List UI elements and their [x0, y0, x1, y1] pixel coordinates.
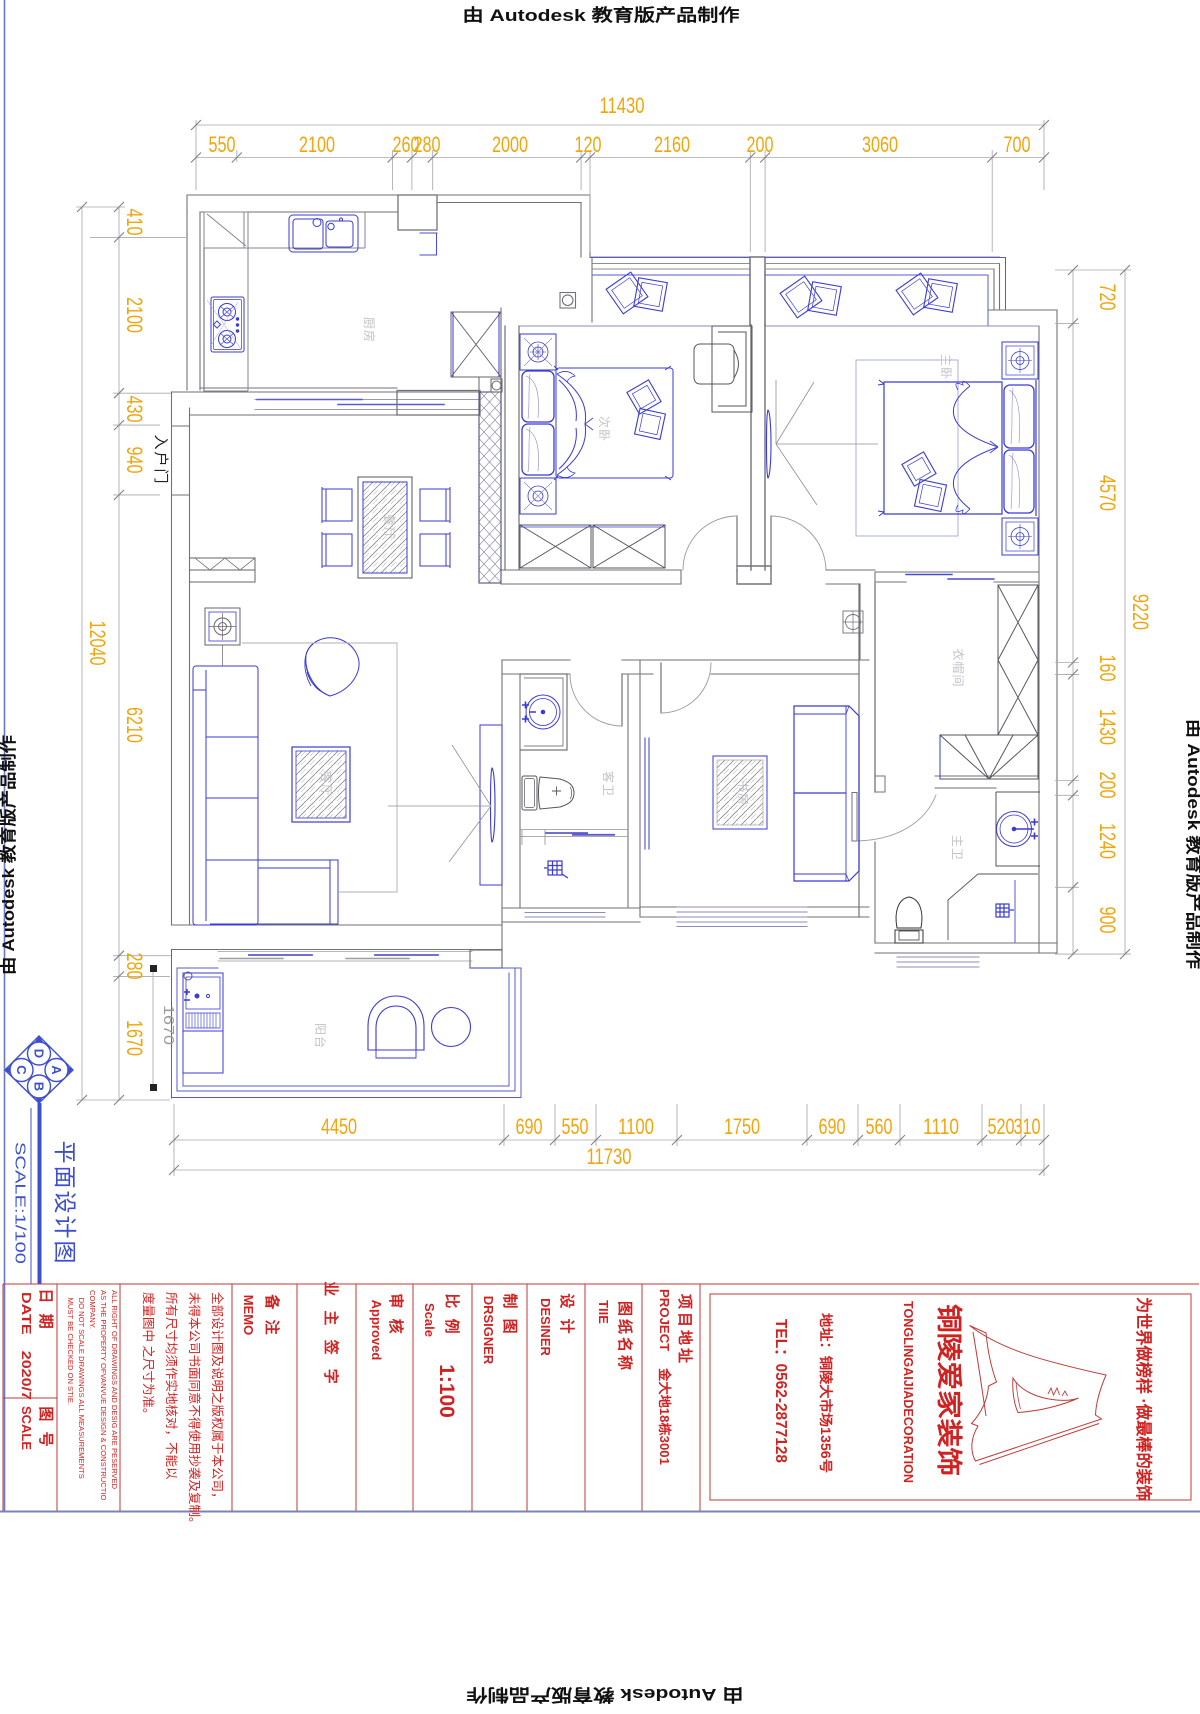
- svg-text:日 期: 日 期: [37, 1288, 55, 1331]
- svg-text:阳台: 阳台: [313, 1023, 328, 1049]
- svg-text:12040: 12040: [85, 621, 110, 666]
- svg-text:SCALE: SCALE: [19, 1406, 34, 1450]
- svg-text:PROJECT 金大地18栋3001: PROJECT 金大地18栋3001: [657, 1289, 672, 1465]
- svg-text:比 例: 比 例: [443, 1293, 461, 1336]
- svg-text:700: 700: [1004, 132, 1031, 157]
- svg-text:2160: 2160: [654, 132, 690, 157]
- svg-text:900: 900: [1095, 907, 1120, 934]
- svg-text:MEMO: MEMO: [241, 1295, 256, 1335]
- svg-text:2100: 2100: [299, 132, 335, 157]
- svg-text:由 Autodesk 教育版产品制作: 由 Autodesk 教育版产品制作: [1184, 719, 1200, 970]
- svg-text:C: C: [14, 1065, 29, 1075]
- svg-text:TONGLINGAIJIADECORATION: TONGLINGAIJIADECORATION: [901, 1301, 915, 1483]
- svg-text:280: 280: [122, 953, 147, 980]
- svg-text:度量图中 之尺寸为准。: 度量图中 之尺寸为准。: [141, 1292, 156, 1420]
- svg-text:550: 550: [209, 132, 236, 157]
- svg-text:1110: 1110: [923, 1114, 959, 1139]
- svg-text:1430: 1430: [1095, 709, 1120, 745]
- svg-text:DATE 2020/7: DATE 2020/7: [19, 1292, 34, 1400]
- svg-text:TIIE: TIIE: [596, 1300, 611, 1324]
- svg-text:1240: 1240: [1095, 823, 1120, 859]
- svg-text:160: 160: [1095, 655, 1120, 682]
- svg-text:B: B: [32, 1082, 47, 1091]
- svg-text:SCALE:1/100: SCALE:1/100: [12, 1142, 28, 1264]
- svg-text:DESINER: DESINER: [538, 1298, 553, 1356]
- svg-text:1100: 1100: [618, 1114, 654, 1139]
- svg-text:Scale: Scale: [422, 1303, 437, 1337]
- svg-text:客卫: 客卫: [601, 771, 616, 797]
- svg-text:DRSIGNER: DRSIGNER: [481, 1296, 496, 1365]
- svg-text:9220: 9220: [1128, 594, 1153, 630]
- svg-text:AS THE PROPERTY OFVANVUE DESIG: AS THE PROPERTY OFVANVUE DESIGN & CONSTR…: [99, 1290, 108, 1501]
- svg-text:200: 200: [747, 132, 774, 157]
- svg-text:11730: 11730: [587, 1144, 632, 1169]
- svg-text:Approved: Approved: [369, 1300, 384, 1361]
- svg-text:4450: 4450: [321, 1114, 357, 1139]
- svg-text:入户门: 入户门: [152, 434, 169, 485]
- svg-text:410: 410: [122, 209, 147, 236]
- svg-text:图纸名称: 图纸名称: [616, 1301, 634, 1373]
- svg-text:主卧: 主卧: [939, 354, 953, 380]
- svg-text:1750: 1750: [724, 1114, 760, 1139]
- svg-text:310: 310: [1014, 1114, 1041, 1139]
- svg-text:项目地址: 项目地址: [676, 1294, 694, 1366]
- svg-text:次卧: 次卧: [597, 416, 611, 442]
- svg-text:690: 690: [516, 1114, 543, 1139]
- svg-text:TEL：0562-2877128: TEL：0562-2877128: [772, 1319, 789, 1463]
- svg-text:COMPANY.: COMPANY.: [88, 1290, 97, 1329]
- svg-text:MUST BE CHECKED ON STIE.: MUST BE CHECKED ON STIE.: [66, 1290, 75, 1405]
- svg-text:520: 520: [988, 1114, 1015, 1139]
- svg-text:制 图: 制 图: [501, 1293, 519, 1336]
- svg-text:由 Autodesk 教育版产品制作: 由 Autodesk 教育版产品制作: [467, 1685, 744, 1705]
- svg-text:A: A: [49, 1065, 64, 1075]
- svg-text:280: 280: [414, 132, 441, 157]
- svg-text:2000: 2000: [492, 132, 528, 157]
- svg-text:为世界做榜样 ·做最棒的装饰: 为世界做榜样 ·做最棒的装饰: [1134, 1297, 1154, 1501]
- svg-text:200: 200: [1095, 772, 1120, 799]
- svg-text:1:100: 1:100: [435, 1364, 458, 1418]
- svg-text:客厅: 客厅: [319, 771, 334, 797]
- svg-text:衣帽间: 衣帽间: [951, 648, 966, 687]
- svg-text:550: 550: [562, 1114, 589, 1139]
- svg-text:书房: 书房: [736, 780, 751, 806]
- svg-text:所有尺寸均须作实地核对，不能以: 所有尺寸均须作实地核对，不能以: [164, 1292, 179, 1480]
- svg-text:厨房: 厨房: [362, 317, 377, 343]
- svg-text:1670: 1670: [160, 1005, 177, 1045]
- svg-text:940: 940: [122, 447, 147, 474]
- svg-text:主卫: 主卫: [950, 835, 964, 861]
- svg-text:6210: 6210: [122, 707, 147, 743]
- svg-text:430: 430: [122, 396, 147, 423]
- svg-text:2100: 2100: [122, 297, 147, 333]
- svg-text:由 Autodesk 教育版产品制作: 由 Autodesk 教育版产品制作: [463, 5, 740, 25]
- svg-text:设 计: 设 计: [558, 1293, 576, 1336]
- svg-text:平面设计图: 平面设计图: [52, 1141, 78, 1266]
- svg-text:ALL RIGHT OF DRAWINGS AND DESI: ALL RIGHT OF DRAWINGS AND DESIG ARE PESE…: [110, 1290, 119, 1490]
- svg-text:全部设计图及说明之版权属于本公司，: 全部设计图及说明之版权属于本公司，: [210, 1292, 225, 1505]
- svg-text:690: 690: [819, 1114, 846, 1139]
- svg-text:560: 560: [866, 1114, 893, 1139]
- svg-text:备 注: 备 注: [263, 1293, 281, 1337]
- svg-text:业 主 签 字: 业 主 签 字: [322, 1281, 340, 1389]
- svg-text:DO NOT SCALE DRAWINGS ALL MEAS: DO NOT SCALE DRAWINGS ALL MEASUREMENTS: [77, 1290, 86, 1479]
- svg-text:审 核: 审 核: [387, 1293, 405, 1336]
- svg-text:D: D: [32, 1049, 47, 1058]
- svg-text:1670: 1670: [122, 1020, 147, 1056]
- svg-text:地址：铜陵大市场1356号: 地址：铜陵大市场1356号: [818, 1313, 834, 1473]
- svg-text:3060: 3060: [862, 132, 898, 157]
- svg-text:11430: 11430: [600, 93, 645, 118]
- svg-text:铜陵爱家装饰: 铜陵爱家装饰: [934, 1304, 964, 1476]
- svg-text:未得本公司书面同意不得使用抄袭及复制。: 未得本公司书面同意不得使用抄袭及复制。: [187, 1292, 202, 1530]
- svg-text:4570: 4570: [1095, 475, 1120, 511]
- svg-text:由 Autodesk 教育版产品制作: 由 Autodesk 教育版产品制作: [0, 734, 18, 975]
- svg-text:图 号: 图 号: [37, 1406, 54, 1449]
- svg-text:120: 120: [575, 132, 602, 157]
- svg-text:餐厅: 餐厅: [382, 514, 397, 540]
- svg-text:720: 720: [1095, 284, 1120, 311]
